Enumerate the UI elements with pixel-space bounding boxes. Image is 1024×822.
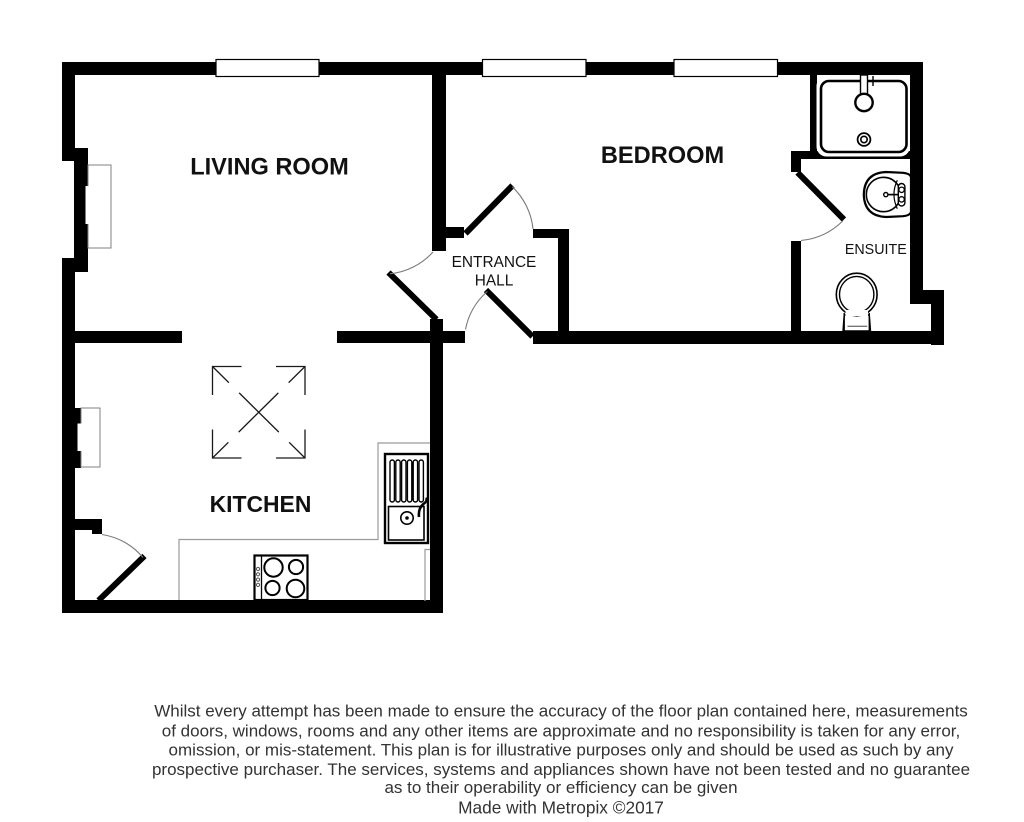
svg-text:ENSUITE: ENSUITE xyxy=(845,242,907,258)
svg-text:LIVING ROOM: LIVING ROOM xyxy=(190,154,349,180)
svg-text:as to their operability or eff: as to their operability or efficiency ca… xyxy=(384,778,737,797)
svg-text:HALL: HALL xyxy=(475,272,514,289)
svg-text:ENTRANCE: ENTRANCE xyxy=(452,254,537,271)
svg-text:Whilst every attempt has been: Whilst every attempt has been made to en… xyxy=(154,702,968,721)
svg-text:Made with Metropix ©2017: Made with Metropix ©2017 xyxy=(458,798,664,818)
svg-text:prospective purchaser. The ser: prospective purchaser. The services, sys… xyxy=(152,760,970,779)
svg-text:BEDROOM: BEDROOM xyxy=(601,143,724,169)
svg-text:of doors, windows, rooms and a: of doors, windows, rooms and any other i… xyxy=(162,721,960,740)
svg-text:omission, or mis-statement. Th: omission, or mis-statement. This plan is… xyxy=(169,741,954,760)
svg-text:KITCHEN: KITCHEN xyxy=(210,491,312,517)
